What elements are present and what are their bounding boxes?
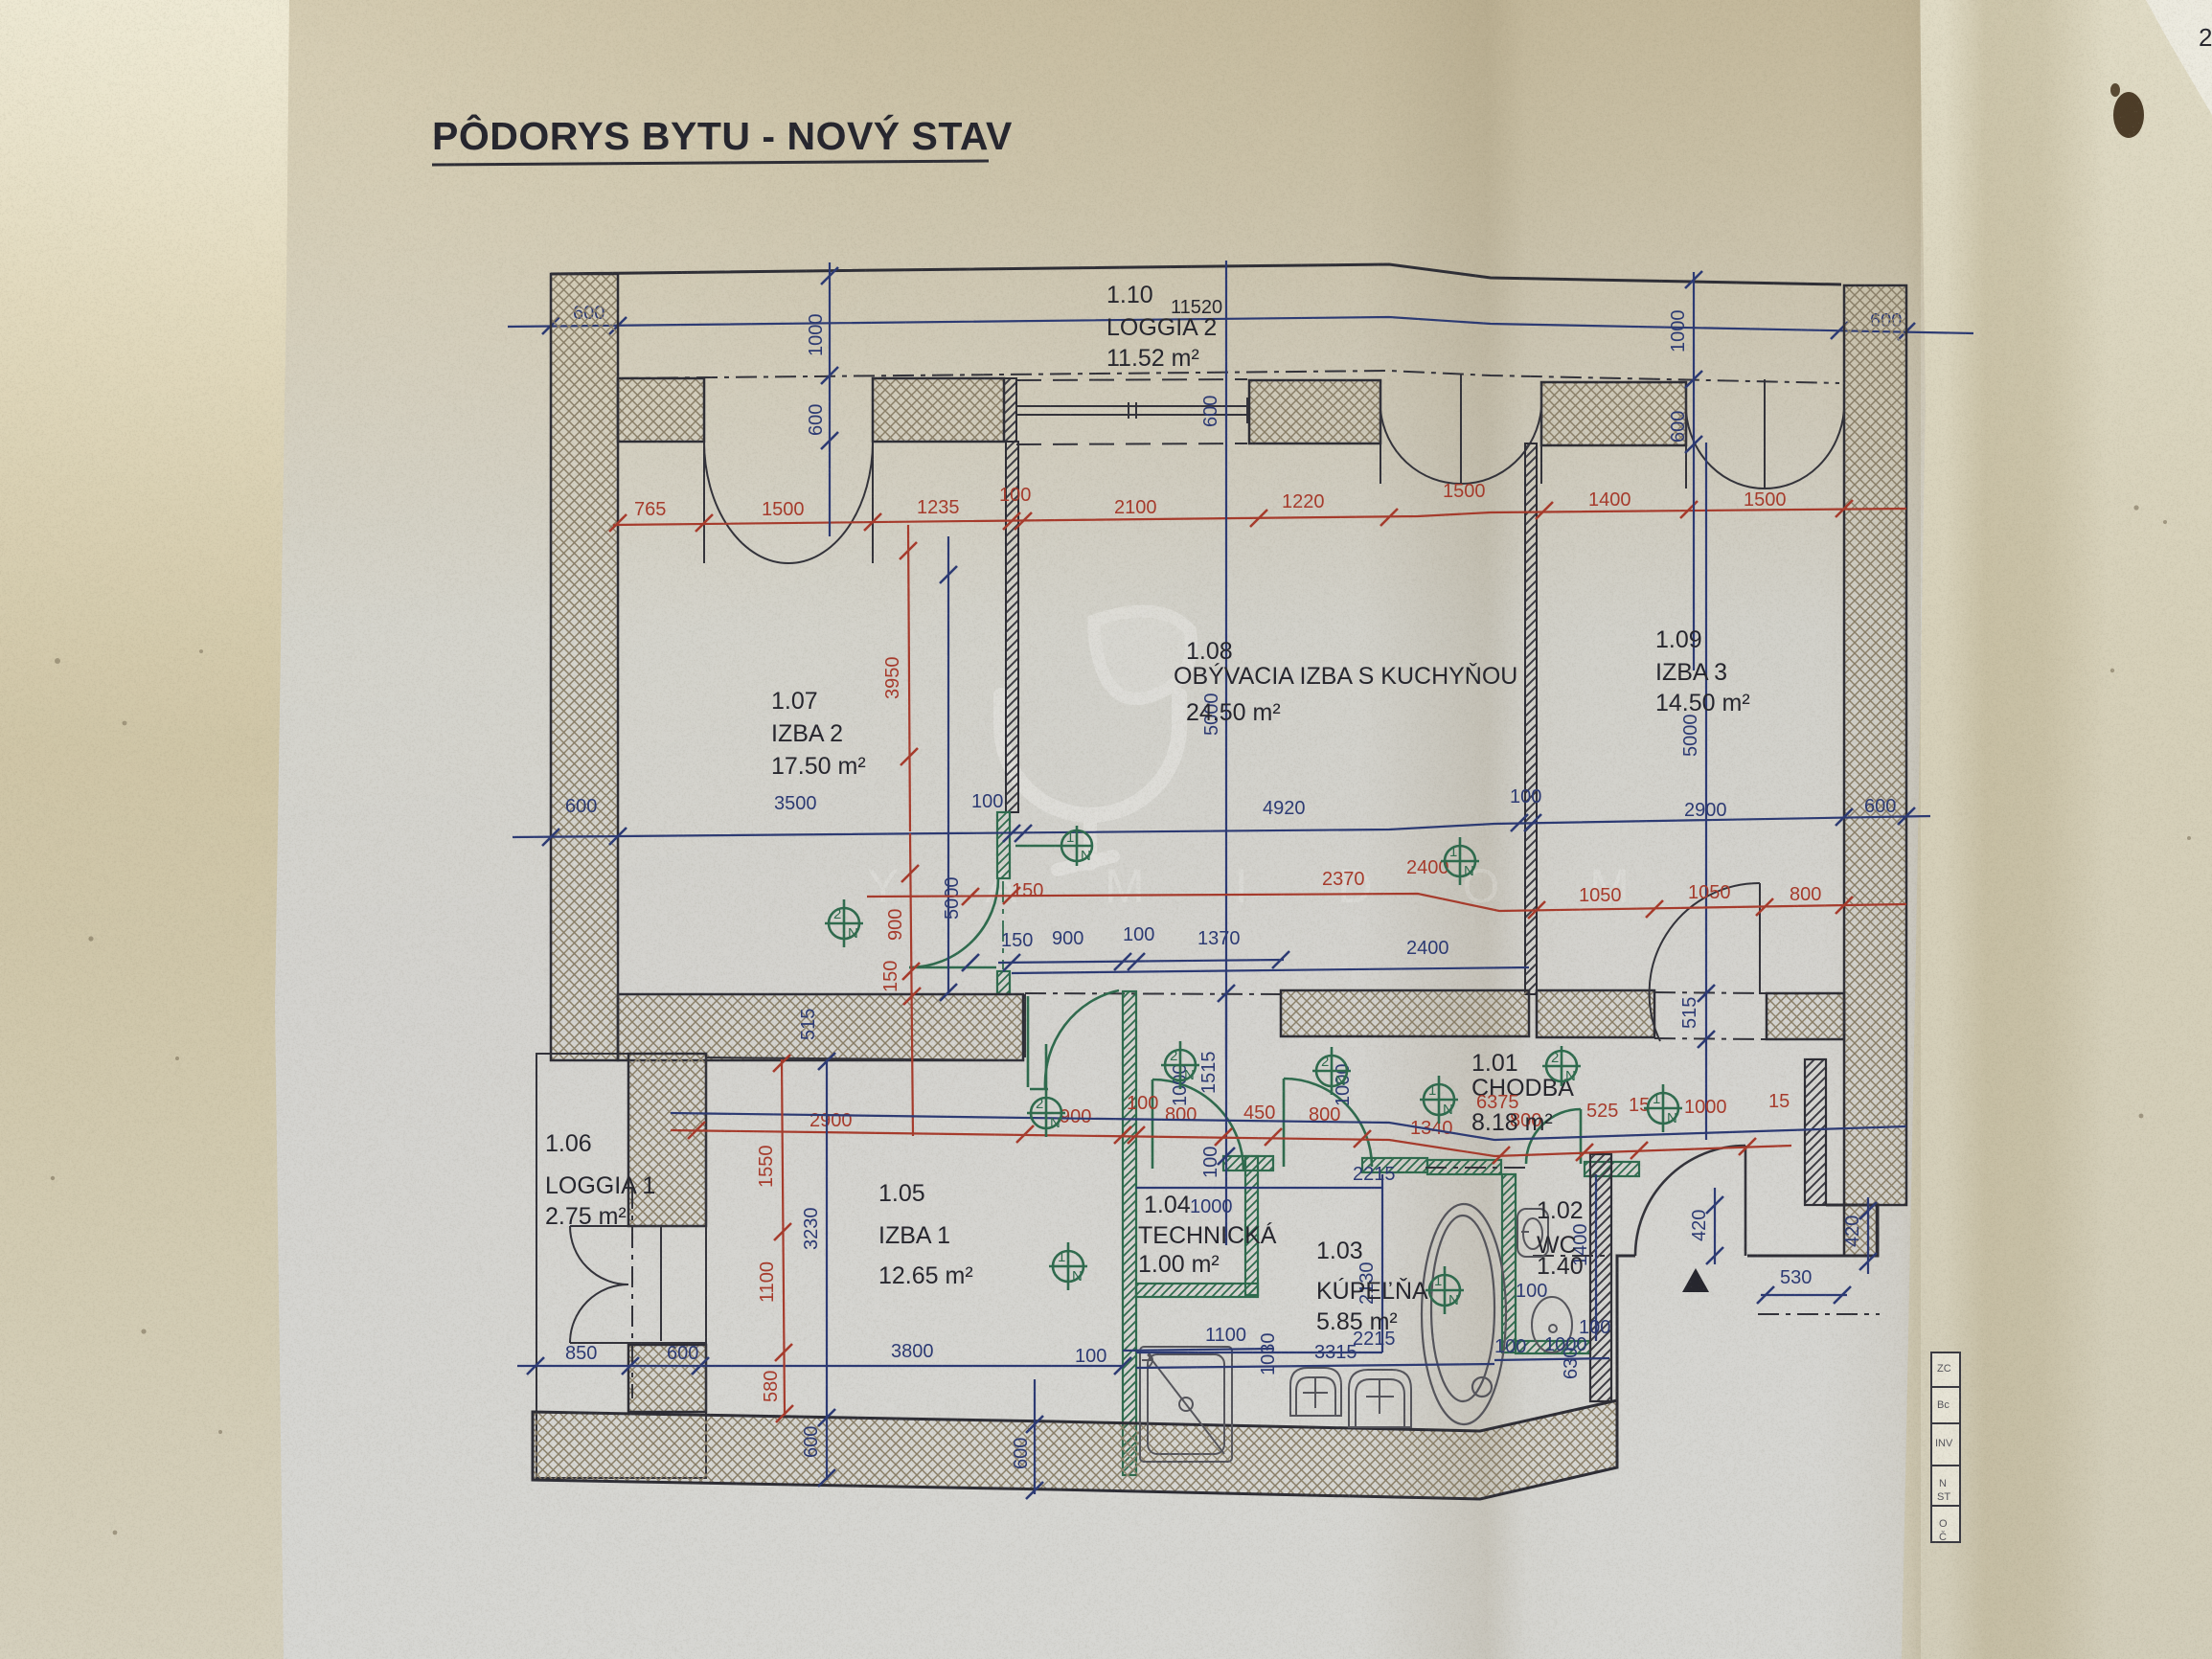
svg-text:2100: 2100	[1114, 497, 1157, 518]
svg-text:1: 1	[1058, 1249, 1065, 1265]
svg-text:PÔDORYS BYTU - NOVÝ STAV: PÔDORYS BYTU - NOVÝ STAV	[432, 114, 1013, 158]
svg-text:100: 100	[1127, 1093, 1158, 1114]
svg-text:900: 900	[1060, 1106, 1091, 1127]
svg-text:1370: 1370	[1197, 928, 1241, 949]
svg-text:1340: 1340	[1410, 1118, 1453, 1139]
svg-text:1.07: 1.07	[771, 688, 818, 715]
svg-text:LOGGIA 2: LOGGIA 2	[1106, 314, 1217, 341]
svg-text:800: 800	[1165, 1104, 1197, 1125]
svg-text:150: 150	[1001, 930, 1033, 951]
svg-text:1: 1	[1428, 1082, 1436, 1099]
svg-text:100: 100	[1123, 924, 1154, 945]
svg-text:600: 600	[1864, 796, 1896, 817]
svg-text:IZBA 3: IZBA 3	[1655, 659, 1727, 686]
svg-text:2900: 2900	[1684, 800, 1727, 821]
svg-text:1550: 1550	[756, 1146, 777, 1189]
svg-text:765: 765	[634, 499, 666, 520]
svg-text:2: 2	[1321, 1054, 1329, 1070]
svg-text:3500: 3500	[774, 793, 817, 814]
svg-text:17.50 m²: 17.50 m²	[771, 753, 866, 780]
svg-text:3950: 3950	[882, 657, 903, 700]
svg-text:2400: 2400	[1406, 938, 1449, 959]
svg-text:100: 100	[1494, 1336, 1526, 1357]
svg-text:N: N	[1072, 1268, 1083, 1284]
svg-text:850: 850	[565, 1343, 597, 1364]
svg-text:1500: 1500	[1443, 481, 1486, 502]
svg-text:1: 1	[1449, 844, 1457, 860]
svg-text:530: 530	[1780, 1267, 1812, 1288]
svg-text:1.01: 1.01	[1471, 1050, 1518, 1077]
svg-text:INV: INV	[1935, 1438, 1953, 1449]
svg-text:5000: 5000	[1680, 715, 1701, 758]
svg-text:1: 1	[1653, 1091, 1660, 1107]
svg-text:100: 100	[1510, 786, 1541, 807]
svg-text:2370: 2370	[1322, 869, 1365, 890]
svg-text:ZC: ZC	[1937, 1363, 1951, 1375]
svg-text:12.65 m²: 12.65 m²	[878, 1262, 973, 1289]
svg-text:O: O	[1939, 1518, 1948, 1530]
svg-text:600: 600	[801, 1426, 822, 1458]
svg-text:5.85 m²: 5.85 m²	[1316, 1308, 1398, 1335]
svg-text:IZBA 2: IZBA 2	[771, 720, 843, 747]
svg-text:IZBA 1: IZBA 1	[878, 1222, 950, 1249]
svg-text:N: N	[1565, 1068, 1576, 1084]
svg-text:Č: Č	[1939, 1531, 1947, 1543]
svg-text:1000: 1000	[1190, 1196, 1233, 1217]
svg-text:515: 515	[798, 1009, 819, 1040]
svg-text:900: 900	[1052, 928, 1083, 949]
svg-text:2: 2	[1036, 1096, 1043, 1112]
svg-text:1000: 1000	[1684, 1097, 1727, 1118]
svg-text:N: N	[1939, 1478, 1947, 1489]
svg-text:11.52 m²: 11.52 m²	[1106, 345, 1199, 372]
svg-text:N: N	[1443, 1102, 1453, 1118]
svg-text:420: 420	[1842, 1216, 1863, 1247]
svg-text:1515: 1515	[1198, 1052, 1220, 1095]
svg-text:Y A M I D O M: Y A M I D O M	[867, 859, 1668, 913]
svg-text:TECHNICKÁ: TECHNICKÁ	[1138, 1221, 1277, 1249]
svg-text:100: 100	[1579, 1317, 1610, 1338]
svg-text:1100: 1100	[1205, 1325, 1246, 1346]
svg-text:1.03: 1.03	[1316, 1238, 1363, 1264]
svg-text:1.04: 1.04	[1144, 1192, 1191, 1218]
svg-text:150: 150	[880, 961, 901, 992]
svg-text:2: 2	[1170, 1048, 1177, 1064]
svg-text:600: 600	[565, 796, 597, 817]
svg-text:5000: 5000	[942, 877, 963, 920]
svg-text:1030: 1030	[1258, 1333, 1279, 1376]
svg-text:N: N	[1667, 1110, 1677, 1126]
svg-text:N: N	[1464, 863, 1474, 879]
svg-text:N: N	[848, 925, 858, 942]
svg-text:100: 100	[1075, 1346, 1106, 1367]
svg-text:525: 525	[1586, 1101, 1618, 1122]
svg-text:1.10: 1.10	[1106, 282, 1153, 308]
svg-text:600: 600	[667, 1343, 698, 1364]
svg-text:100: 100	[1516, 1281, 1547, 1302]
svg-text:1: 1	[1434, 1273, 1442, 1289]
svg-text:100: 100	[1200, 1147, 1221, 1178]
svg-text:2.75 m²: 2.75 m²	[545, 1203, 627, 1230]
svg-text:2: 2	[1551, 1050, 1559, 1066]
svg-text:600: 600	[1200, 396, 1221, 427]
svg-text:1.08: 1.08	[1186, 638, 1233, 665]
svg-text:1.40: 1.40	[1537, 1253, 1584, 1280]
svg-text:24.50 m²: 24.50 m²	[1186, 699, 1281, 726]
svg-text:1.00 m²: 1.00 m²	[1138, 1251, 1220, 1278]
svg-text:ST: ST	[1937, 1491, 1950, 1503]
svg-text:14.50 m²: 14.50 m²	[1655, 690, 1750, 716]
svg-text:N: N	[1448, 1292, 1459, 1308]
svg-text:1220: 1220	[1282, 491, 1325, 512]
svg-text:1.09: 1.09	[1655, 626, 1702, 653]
svg-text:1050: 1050	[1688, 882, 1731, 903]
svg-text:600: 600	[806, 404, 827, 436]
svg-text:OBÝVACIA IZBA S KUCHYŇOU: OBÝVACIA IZBA S KUCHYŇOU	[1174, 662, 1517, 690]
svg-text:1100: 1100	[757, 1261, 778, 1303]
svg-text:1235: 1235	[917, 497, 960, 518]
svg-text:8.18 m²: 8.18 m²	[1471, 1109, 1553, 1136]
svg-text:600: 600	[1668, 411, 1689, 443]
svg-text:420: 420	[1689, 1210, 1710, 1241]
svg-text:3230: 3230	[801, 1208, 822, 1251]
svg-text:1: 1	[1066, 829, 1074, 846]
svg-text:800: 800	[1790, 884, 1821, 905]
svg-text:100: 100	[999, 485, 1031, 506]
svg-text:15: 15	[1768, 1091, 1790, 1112]
svg-text:600: 600	[1011, 1438, 1032, 1469]
svg-text:4920: 4920	[1263, 798, 1306, 819]
svg-text:1.06: 1.06	[545, 1130, 592, 1157]
svg-text:2900: 2900	[810, 1110, 853, 1131]
svg-text:2: 2	[833, 906, 841, 922]
svg-text:KÚPEĽŇA: KÚPEĽŇA	[1316, 1277, 1428, 1305]
svg-text:1000: 1000	[806, 314, 827, 357]
svg-text:LOGGIA 1: LOGGIA 1	[545, 1172, 655, 1199]
svg-text:515: 515	[1679, 997, 1700, 1029]
svg-text:3315: 3315	[1314, 1342, 1357, 1363]
svg-text:N: N	[1081, 848, 1091, 864]
svg-text:N: N	[1050, 1115, 1060, 1131]
svg-text:N: N	[1335, 1073, 1346, 1089]
svg-text:Bc: Bc	[1937, 1399, 1950, 1411]
svg-text:100: 100	[971, 791, 1003, 812]
svg-text:N: N	[1184, 1067, 1195, 1083]
svg-text:900: 900	[885, 909, 906, 941]
svg-text:3800: 3800	[891, 1341, 934, 1362]
svg-text:15: 15	[1629, 1095, 1650, 1116]
svg-text:1500: 1500	[762, 499, 805, 520]
svg-text:2215: 2215	[1353, 1164, 1396, 1185]
svg-text:1.05: 1.05	[878, 1180, 925, 1207]
svg-text:1400: 1400	[1588, 489, 1631, 511]
svg-text:150: 150	[1012, 880, 1043, 901]
svg-text:580: 580	[761, 1371, 782, 1402]
svg-text:1500: 1500	[1744, 489, 1787, 511]
svg-text:1.02: 1.02	[1537, 1197, 1584, 1224]
svg-text:1000: 1000	[1668, 310, 1689, 353]
svg-text:1050: 1050	[1579, 885, 1622, 906]
